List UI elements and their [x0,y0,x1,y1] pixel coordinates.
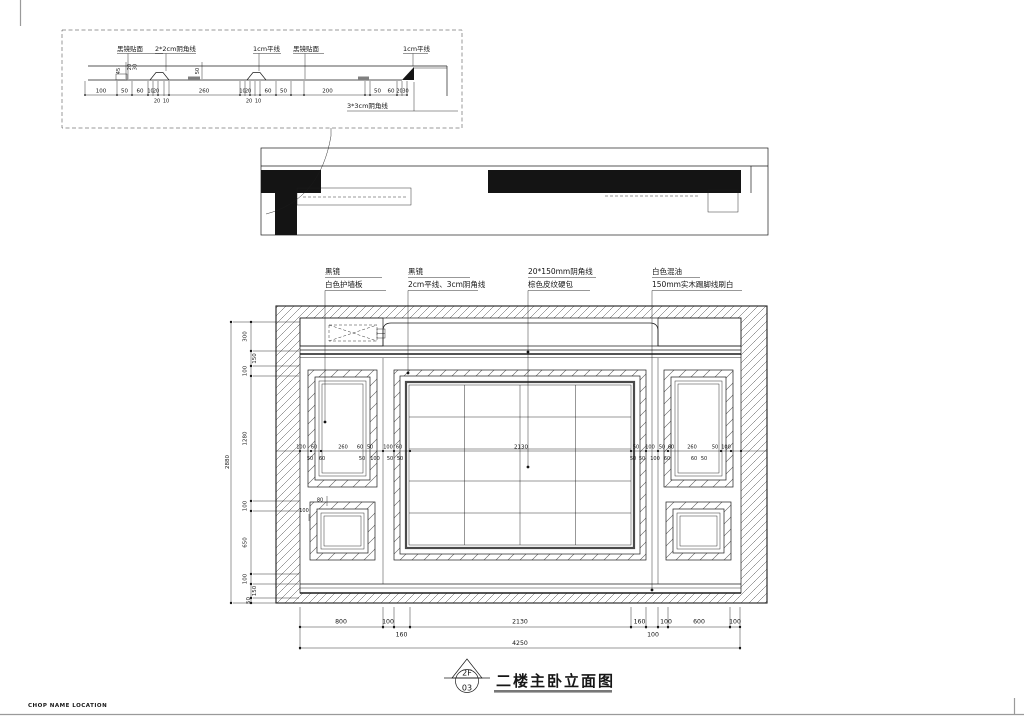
dim-label: 50 [630,456,636,462]
dim-label: 100 [96,89,107,95]
dim-label: 100 [383,445,393,451]
wall-fill [488,170,741,193]
dim-label: 20 [245,89,251,95]
dim-label: 100 [243,573,249,584]
dim-label: 60 [265,89,272,95]
dim-label: 20 [154,99,160,105]
title-block: 2F 03 二楼主卧立面图 [444,659,615,693]
dim-label-total: 4250 [512,640,528,647]
dim-label: 50 [367,445,373,451]
dim-label: 60 [357,445,363,451]
wall-fill [275,193,297,235]
dim-label: 20 [153,89,159,95]
dim-label: 50 [387,456,393,462]
dim-label: 50 [659,445,665,451]
dim-label: 100 [370,456,380,462]
plan-section-drawing [261,128,768,235]
dim-label: 50 [701,456,707,462]
callout-label: 白色护墙板 [325,279,363,289]
dim-label: 100 [243,500,249,511]
sheet-border [0,0,1024,715]
dim-label: 50 [397,456,403,462]
callout-label: 1cm平线 [403,44,431,53]
dim-label: 20 [246,99,252,105]
dim-label: 260 [199,89,210,95]
dim-label: 60 [668,445,674,451]
dim-label: 60 [691,456,697,462]
moulding-detail-drawing: 100 50 60 10 20 260 10 20 60 50 200 50 6… [62,30,462,128]
dim-label: 60 [311,445,317,451]
callout-label: 20*150mm阴角线 [528,266,593,276]
dim-label: 60 [319,456,325,462]
dim-label: 50 [359,456,365,462]
dim-label: 30 [402,89,408,95]
dim-label: 100 [650,456,660,462]
dim-label: 260 [338,445,348,451]
title-underline [494,690,612,693]
dim-label: 100 [647,632,659,639]
wall-fill [261,170,321,193]
cad-drawing-sheet: 100 50 60 10 20 260 10 20 60 50 200 50 6… [0,0,1024,724]
callout-label: 3*3cm阴角线 [347,101,388,110]
dim-label: 50 [280,89,287,95]
drawing-title: 二楼主卧立面图 [496,672,615,690]
dim-label: 50 [307,456,313,462]
callout-label: 黑镜贴面 [293,44,320,53]
dim-label: 300 [243,331,249,342]
cad-drawing-canvas: 100 50 60 10 20 260 10 20 60 50 200 50 6… [0,0,1024,724]
dim-label: 60 [388,89,395,95]
callout-label: 棕色皮纹硬包 [528,279,573,289]
dim-label: 100 [721,445,731,451]
dim-label: 650 [243,537,249,548]
dim-label: 50 [195,68,201,74]
callout-label: 黑镜 [408,266,423,276]
bottom-dim-chain: 800 100 160 2130 160 100 100 600 100 425… [299,607,741,650]
dim-label: 10 [255,99,261,105]
footer-note: CHOP NAME LOCATION [28,703,107,709]
dim-label: 100 [660,619,672,626]
callout-label: 150mm实木踢脚线刷白 [652,279,733,289]
dim-label: 80 [317,498,323,504]
dim-label: 100 [645,445,655,451]
dim-label: 2130 [514,445,528,451]
dim-label: 50 [246,597,252,604]
marker-level: 2F [462,669,472,678]
dim-label: 100 [243,365,249,376]
dim-label: 2130 [512,619,528,626]
dim-label: 50 [639,456,645,462]
callout-label: 黑镜贴面 [117,44,144,53]
callout-label: 黑镜 [325,266,340,276]
dim-label-total: 2880 [225,455,231,469]
dim-label: 150 [252,585,258,596]
dim-label: 100 [729,619,741,626]
dim-label: 150 [252,353,258,364]
dim-label: 30 [133,64,139,70]
dim-label: 160 [634,619,646,626]
dim-label: 50 [712,445,718,451]
dim-label: 100 [296,445,306,451]
dim-label: 60 [664,456,670,462]
callout-label: 2cm平线、3cm阴角线 [408,279,486,289]
dim-label: 260 [687,445,697,451]
dim-label: 200 [322,89,333,95]
dim-label: 50 [633,445,639,451]
dim-label: 160 [396,632,408,639]
dim-label: 100 [299,508,309,514]
dim-label: 1280 [243,431,249,445]
mirror-veneer-strip [188,77,200,81]
dim-label: 60 [137,89,144,95]
hardpack-grid-vlines [465,385,576,545]
elevation-drawing: 100 60 260 60 50 100 60 50 60 50 100 50 … [225,266,767,650]
callout-label: 白色混油 [652,266,682,276]
mirror-veneer-strip [358,77,369,81]
dim-label: 50 [121,89,128,95]
callout-label: 1cm平线 [253,44,281,53]
dim-label: 600 [693,619,705,626]
dim-label: 800 [335,619,347,626]
callout-label: 2*2cm阴角线 [155,44,196,53]
dim-label: 45 [116,68,122,74]
dim-label: 50 [374,89,381,95]
marker-number: 03 [462,684,472,693]
dim-label: 10 [163,99,169,105]
dim-label: 60 [396,445,402,451]
dim-label: 100 [382,619,394,626]
